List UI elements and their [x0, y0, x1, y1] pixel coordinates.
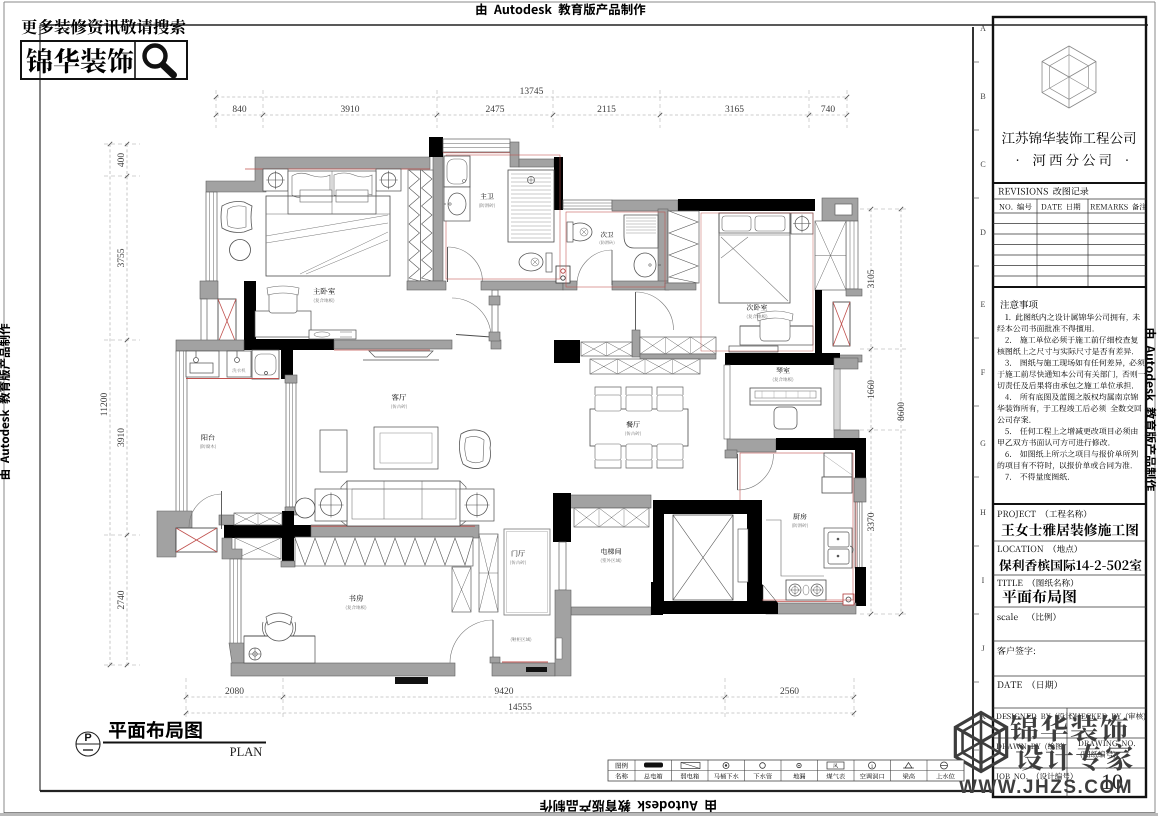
svg-text:J: J	[981, 644, 984, 653]
svg-text:740: 740	[821, 105, 836, 115]
svg-text:H: H	[980, 508, 986, 517]
svg-text:840: 840	[232, 105, 247, 115]
svg-text:G: G	[980, 439, 986, 448]
svg-text:3370: 3370	[867, 512, 877, 531]
svg-text:11200: 11200	[100, 393, 110, 417]
svg-text:3165: 3165	[725, 105, 744, 115]
svg-text:1660: 1660	[867, 380, 877, 399]
svg-text:P: P	[84, 732, 91, 744]
svg-text:A: A	[980, 24, 986, 33]
svg-text:2560: 2560	[780, 687, 799, 697]
svg-text:E: E	[981, 300, 986, 309]
svg-text:9420: 9420	[495, 687, 514, 697]
svg-text:I: I	[982, 576, 985, 585]
svg-text:C: C	[980, 160, 985, 169]
svg-text:D: D	[980, 228, 986, 237]
svg-text:1: 1	[871, 764, 874, 770]
svg-text:3910: 3910	[341, 105, 360, 115]
svg-text:400: 400	[117, 153, 127, 168]
svg-text:PLAN: PLAN	[230, 745, 263, 759]
svg-text:3910: 3910	[117, 428, 127, 447]
svg-text:WWW.JHZS.COM: WWW.JHZS.COM	[959, 777, 1133, 798]
svg-text:8600: 8600	[897, 402, 907, 421]
svg-text:B: B	[980, 92, 985, 101]
svg-text:3105: 3105	[867, 269, 877, 288]
svg-text:13745: 13745	[520, 87, 544, 97]
svg-text:3755: 3755	[117, 248, 127, 267]
svg-text:F: F	[981, 368, 986, 377]
svg-text:2740: 2740	[117, 590, 127, 609]
svg-text:2080: 2080	[225, 687, 244, 697]
svg-text:2475: 2475	[486, 105, 505, 115]
svg-text:14555: 14555	[508, 703, 532, 713]
svg-text:2115: 2115	[597, 105, 616, 115]
